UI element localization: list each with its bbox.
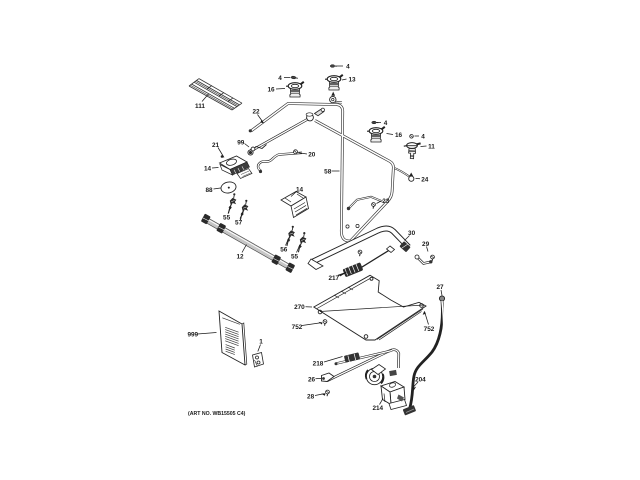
svg-text:111: 111 xyxy=(195,103,205,110)
svg-text:752: 752 xyxy=(292,324,303,331)
svg-text:752: 752 xyxy=(424,326,435,333)
svg-text:14: 14 xyxy=(296,186,304,193)
svg-text:14: 14 xyxy=(204,166,212,173)
svg-text:55: 55 xyxy=(223,215,231,222)
svg-text:55: 55 xyxy=(291,254,299,261)
svg-text:4: 4 xyxy=(346,64,350,71)
svg-text:11: 11 xyxy=(428,144,435,151)
svg-text:58: 58 xyxy=(324,169,332,176)
svg-text:4: 4 xyxy=(278,75,282,82)
svg-text:4: 4 xyxy=(384,120,388,127)
svg-text:22: 22 xyxy=(252,109,260,116)
svg-text:23: 23 xyxy=(382,198,390,205)
svg-text:12: 12 xyxy=(236,253,244,260)
svg-text:24: 24 xyxy=(421,176,429,183)
svg-text:218: 218 xyxy=(313,360,324,367)
svg-text:21: 21 xyxy=(212,142,220,149)
svg-text:270: 270 xyxy=(294,304,305,311)
svg-text:16: 16 xyxy=(267,87,275,94)
svg-text:30: 30 xyxy=(408,230,416,237)
svg-text:13: 13 xyxy=(348,77,356,84)
svg-text:27: 27 xyxy=(436,284,444,291)
svg-text:57: 57 xyxy=(235,220,243,227)
svg-text:99: 99 xyxy=(237,140,245,147)
svg-text:1: 1 xyxy=(259,339,263,346)
svg-text:(ART NO. WB15505 C4): (ART NO. WB15505 C4) xyxy=(188,411,246,417)
svg-text:204: 204 xyxy=(415,377,426,384)
svg-text:28: 28 xyxy=(307,394,315,401)
svg-text:56: 56 xyxy=(280,247,288,254)
svg-text:88: 88 xyxy=(205,187,213,194)
svg-text:16: 16 xyxy=(395,132,403,139)
svg-text:999: 999 xyxy=(187,332,198,339)
svg-text:29: 29 xyxy=(422,241,430,248)
svg-text:4: 4 xyxy=(421,134,425,141)
svg-text:217: 217 xyxy=(328,275,339,282)
svg-text:214: 214 xyxy=(372,405,383,412)
svg-text:26: 26 xyxy=(308,376,316,383)
svg-text:20: 20 xyxy=(308,152,316,159)
